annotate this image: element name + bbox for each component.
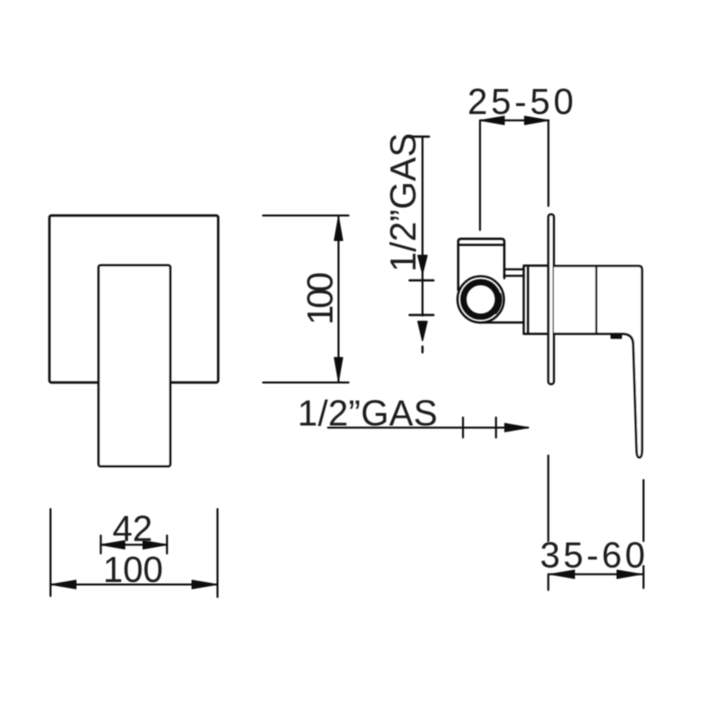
svg-text:25-50: 25-50 <box>468 81 574 122</box>
svg-text:42: 42 <box>112 508 152 549</box>
svg-text:100: 100 <box>103 549 163 590</box>
svg-text:1/2”GAS: 1/2”GAS <box>383 133 424 272</box>
svg-text:1/2”GAS: 1/2”GAS <box>298 393 438 434</box>
svg-text:100: 100 <box>300 272 341 325</box>
svg-text:35-60: 35-60 <box>540 535 645 576</box>
